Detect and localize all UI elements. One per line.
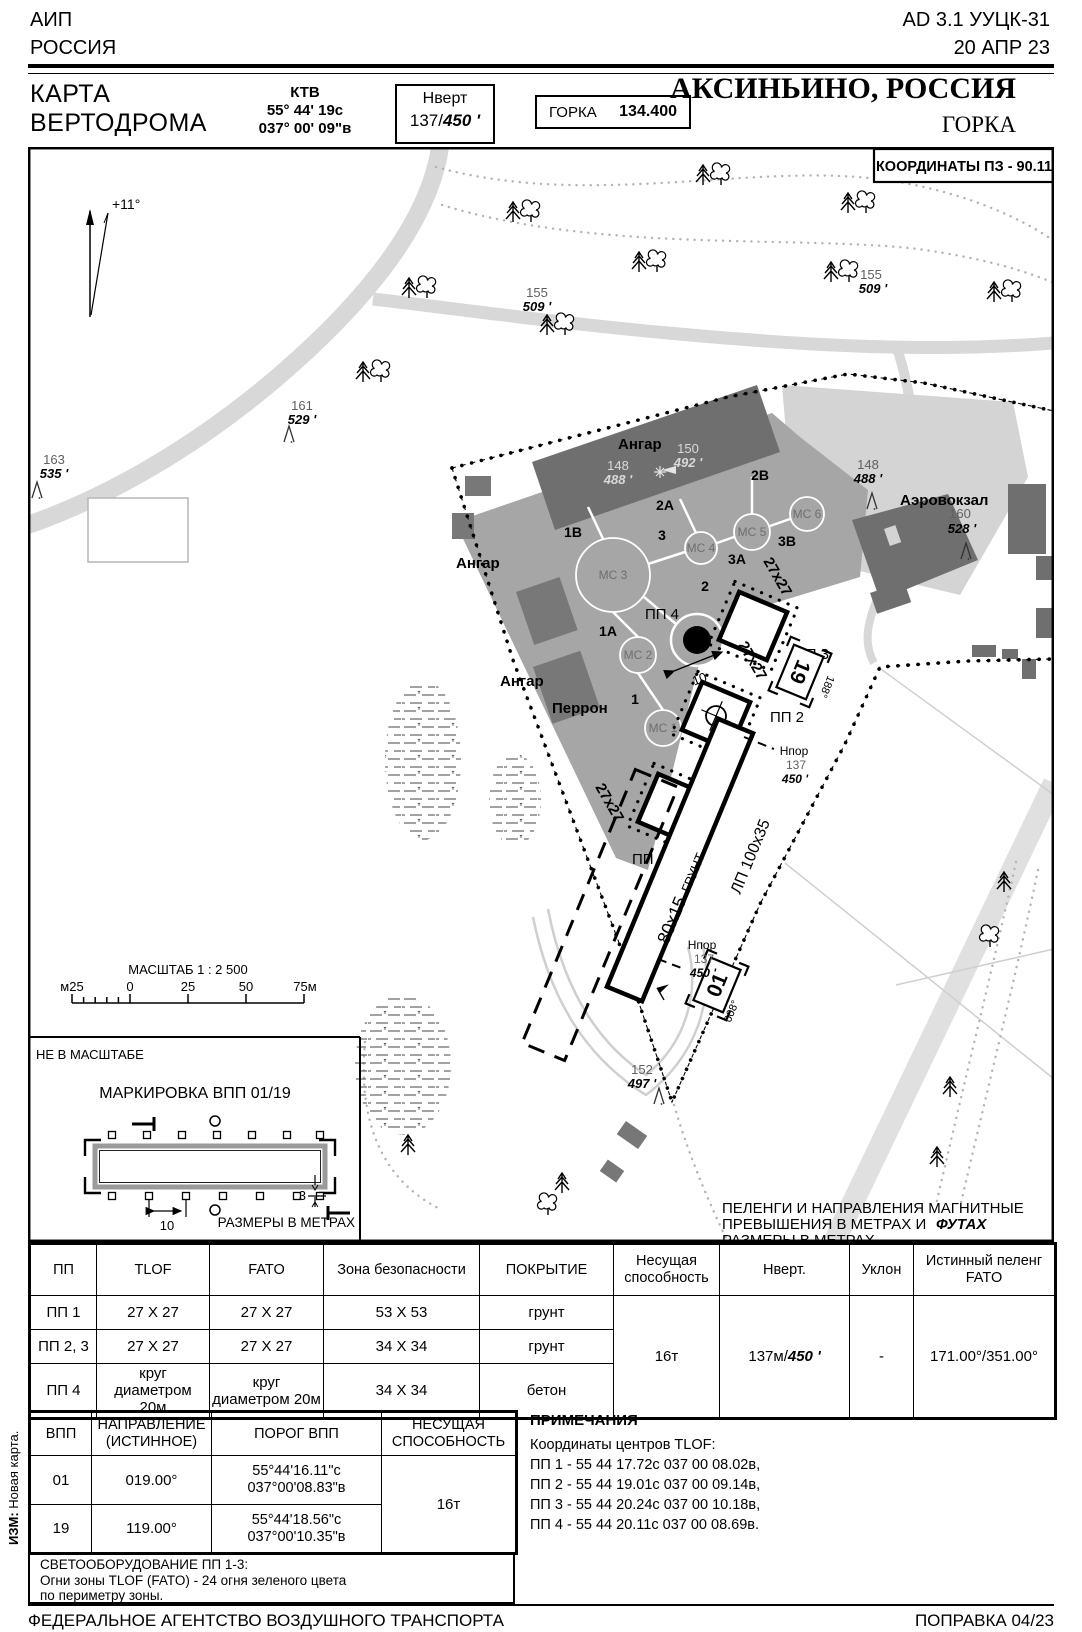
nvert-label: Нверт: [397, 90, 493, 108]
aip-line1: АИП: [30, 6, 116, 34]
rwy-capacity-cell: 16т: [382, 1456, 517, 1554]
twy-3v: 3В: [778, 533, 796, 549]
freq-value: 134.400: [619, 103, 677, 121]
svg-text:163: 163: [43, 452, 65, 467]
doc-ref: AD 3.1 УУЦК-31: [903, 6, 1050, 34]
aip-org-block: АИП РОССИЯ: [30, 6, 116, 62]
doc-ref-block: AD 3.1 УУЦК-31 20 АПР 23: [903, 6, 1050, 62]
svg-text:25: 25: [181, 979, 195, 994]
nvert-cell: 137м/450 ': [720, 1296, 850, 1419]
units-note: ПЕЛЕНГИ И НАПРАВЛЕНИЯ МАГНИТНЫЕ ПРЕВЫШЕН…: [722, 1200, 1024, 1242]
runway-data-table: ВПП НАПРАВЛЕНИЕ (ИСТИННОЕ) ПОРОГ ВПП НЕС…: [28, 1410, 518, 1555]
svg-text:ФУТАХ: ФУТАХ: [936, 1216, 987, 1233]
nvert-box: Нверт 137/450 ': [395, 84, 495, 144]
scale-bar: МАСШТАБ 1 : 2 500 м25 0 25 50 75м: [60, 962, 316, 1003]
svg-text:150: 150: [677, 441, 699, 456]
capacity-cell: 16т: [614, 1296, 720, 1419]
swamp-layer: [355, 680, 541, 1135]
elevation-155-west: 155509 ': [523, 285, 552, 314]
table-row: ПП 1 27 X 27 27 X 27 53 X 53 грунт 16т 1…: [30, 1296, 1056, 1330]
svg-text:Нпор: Нпор: [780, 744, 809, 758]
elevation-150-hangar: 150492 ': [673, 441, 703, 470]
lighting-note-box: СВЕТООБОРУДОВАНИЕ ПП 1-3: Огни зоны TLOF…: [28, 1552, 515, 1604]
stand-mc4: МС 4: [687, 541, 716, 555]
twy-1: 1: [631, 691, 639, 707]
col-fato: FATO: [210, 1244, 324, 1296]
elevation-148-hangar: 148488 ': [603, 458, 633, 487]
svg-text:ПЕЛЕНГИ И НАПРАВЛЕНИЯ МАГНИТНЫ: ПЕЛЕНГИ И НАПРАВЛЕНИЯ МАГНИТНЫЕ: [722, 1200, 1024, 1217]
tlof-coord-pp4: ПП 4 - 55 44 20.11с 037 00 08.69в.: [530, 1515, 1050, 1535]
not-to-scale-label: НЕ В МАСШТАБЕ: [36, 1047, 144, 1062]
svg-text:488 ': 488 ': [603, 472, 633, 487]
svg-text:137: 137: [694, 952, 714, 966]
svg-text:148: 148: [857, 457, 879, 472]
svg-text:492 ': 492 ': [673, 455, 703, 470]
footer-amendment: ПОПРАВКА 04/23: [915, 1611, 1054, 1631]
col-vpp: ВПП: [30, 1412, 92, 1456]
stand-mc2: МС 2: [624, 648, 653, 662]
svg-text:450 ': 450 ': [781, 772, 809, 786]
dim-10: 10: [160, 1218, 174, 1233]
threshold-01-coords: 55°44'16.11"с037°00'08.83"в: [212, 1456, 382, 1505]
twy-2v: 2В: [751, 467, 769, 483]
inset-marking-diagram: НЕ В МАСШТАБЕ МАРКИРОВКА ВПП 01/19 10 3 …: [28, 1037, 360, 1242]
svg-text:148: 148: [607, 458, 629, 473]
twy-3a: 3А: [728, 551, 746, 567]
inset-caption: РАЗМЕРЫ В МЕТРАХ: [218, 1215, 355, 1230]
apron-label: Перрон: [552, 700, 608, 717]
remarks-title: ПРИМЕЧАНИЯ: [530, 1412, 1050, 1429]
col-nvert: Нверт.: [720, 1244, 850, 1296]
aip-line2: РОССИЯ: [30, 34, 116, 62]
stand-mc6: МС 6: [793, 507, 822, 521]
revision-note: ИЗМ: Новая карта.: [6, 1431, 21, 1545]
freq-callsign: ГОРКА: [549, 104, 597, 121]
pp2-label: ПП 2: [770, 709, 804, 726]
marking-title: МАРКИРОВКА ВПП 01/19: [99, 1085, 291, 1102]
declination-value: +11°: [112, 196, 140, 212]
windsock-2-icon: [657, 982, 674, 1000]
pp4-label: ПП 4: [645, 606, 679, 623]
svg-text:75м: 75м: [293, 979, 316, 994]
svg-text:450 ': 450 ': [689, 966, 717, 980]
svg-text:509 ': 509 ': [523, 299, 552, 314]
svg-text:м25: м25: [60, 979, 83, 994]
twy-3: 3: [658, 527, 666, 543]
svg-text:155: 155: [526, 285, 548, 300]
site-name: ГОРКА: [942, 112, 1016, 138]
footer-agency: ФЕДЕРАЛЬНОЕ АГЕНТСТВО ВОЗДУШНОГО ТРАНСПО…: [28, 1611, 504, 1631]
elevation-163: 163535 ': [32, 452, 69, 499]
helipad-h-icon: H: [692, 633, 703, 650]
page-footer: ФЕДЕРАЛЬНОЕ АГЕНТСТВО ВОЗДУШНОГО ТРАНСПО…: [28, 1604, 1054, 1631]
svg-text:160: 160: [949, 506, 971, 521]
npor-label-north: Нпор 137 450 ': [744, 737, 809, 786]
twy-2: 2: [701, 578, 709, 594]
frequency-box: ГОРКА 134.400: [535, 95, 691, 129]
tlof-coord-pp3: ПП 3 - 55 44 20.24с 037 00 10.18в,: [530, 1495, 1050, 1515]
svg-text:155: 155: [860, 267, 882, 282]
col-tlof: TLOF: [97, 1244, 210, 1296]
svg-text:137: 137: [786, 758, 806, 772]
twy-2a: 2А: [656, 497, 674, 513]
elevation-155-east: 155509 ': [859, 267, 888, 296]
col-true-bearing: Истинный пеленг FATO: [914, 1244, 1056, 1296]
col-safety-zone: Зона безопасности: [324, 1244, 480, 1296]
hangar-main-label: Ангар: [618, 436, 662, 453]
helipad-data-table: ПП TLOF FATO Зона безопасности ПОКРЫТИЕ …: [28, 1242, 1057, 1420]
tlof-coord-pp2: ПП 2 - 55 44 19.01с 037 00 09.14в,: [530, 1475, 1050, 1495]
nvert-value: 137/450 ': [397, 111, 493, 131]
aip-heliport-chart-page: { "header":{"aip_line1":"АИП","aip_line2…: [0, 0, 1082, 1632]
svg-text:Нпор: Нпор: [688, 938, 717, 952]
doc-date: 20 АПР 23: [903, 34, 1050, 62]
svg-text:0: 0: [126, 979, 133, 994]
north-declination-arrow: +11°: [86, 196, 140, 317]
hangar-3-label: Ангар: [500, 673, 544, 690]
stand-mc5: МС 5: [738, 525, 767, 539]
svg-text:529 ': 529 ': [288, 412, 317, 427]
bearing-188: 188°: [817, 674, 837, 700]
col-bearing-capacity: НЕСУЩАЯ СПОСОБНОСТЬ: [382, 1412, 517, 1456]
threshold-19-coords: 55°44'18.56"с037°00'10.35"в: [212, 1505, 382, 1554]
svg-text:МАСШТАБ 1 : 2 500: МАСШТАБ 1 : 2 500: [128, 962, 247, 977]
svg-text:509 ': 509 ': [859, 281, 888, 296]
elevation-161: 161529 ': [284, 398, 317, 443]
svg-text:528 ': 528 ': [948, 521, 977, 536]
stand-mc3: МС 3: [599, 568, 628, 582]
remarks-subtitle: Координаты центров TLOF:: [530, 1435, 1050, 1455]
aerodrome-name: АКСИНЬИНО, РОССИЯ: [670, 72, 1016, 106]
col-direction: НАПРАВЛЕНИЕ (ИСТИННОЕ): [92, 1412, 212, 1456]
aerodrome-map: МС 3 МС 2 МС 1 МС 4 МС 5 МС 6 H 10 27х27…: [28, 147, 1054, 1242]
svg-text:ПРЕВЫШЕНИЯ В МЕТРАХ И: ПРЕВЫШЕНИЯ В МЕТРАХ И: [722, 1216, 926, 1233]
svg-text:161: 161: [291, 398, 313, 413]
chart-title: КАРТА ВЕРТОДРОМА: [30, 80, 207, 138]
bearing-cell: 171.00°/351.00°: [914, 1296, 1056, 1419]
col-slope: Уклон: [850, 1244, 914, 1296]
table-row: 01 019.00° 55°44'16.11"с037°00'08.83"в 1…: [30, 1456, 517, 1505]
svg-text:497 ': 497 ': [627, 1076, 657, 1091]
runway-dim-label: ЛП 100х35: [728, 817, 774, 897]
col-pp: ПП: [30, 1244, 97, 1296]
svg-text:488 ': 488 ': [853, 471, 883, 486]
tlof-coord-pp1: ПП 1 - 55 44 17.72с 037 00 08.02в,: [530, 1455, 1050, 1475]
col-surface: ПОКРЫТИЕ: [480, 1244, 614, 1296]
terminal-label: Аэровокзал: [900, 492, 988, 509]
col-threshold: ПОРОГ ВПП: [212, 1412, 382, 1456]
remarks-block: ПРИМЕЧАНИЯ Координаты центров TLOF: ПП 1…: [530, 1412, 1050, 1535]
col-capacity: Несущая способность: [614, 1244, 720, 1296]
twy-1v: 1В: [564, 524, 582, 540]
twy-1a: 1А: [599, 623, 617, 639]
svg-text:50: 50: [239, 979, 253, 994]
pz-coords-label: КООРДИНАТЫ ПЗ - 90.11: [876, 159, 1052, 175]
svg-text:152: 152: [631, 1062, 653, 1077]
dim-3: 3: [299, 1188, 306, 1203]
slope-cell: -: [850, 1296, 914, 1419]
hangar-2-label: Ангар: [456, 555, 500, 572]
svg-text:535 ': 535 ': [40, 466, 69, 481]
ktv-coordinates: КТВ 55° 44' 19с 037° 00' 09"в: [230, 84, 380, 138]
